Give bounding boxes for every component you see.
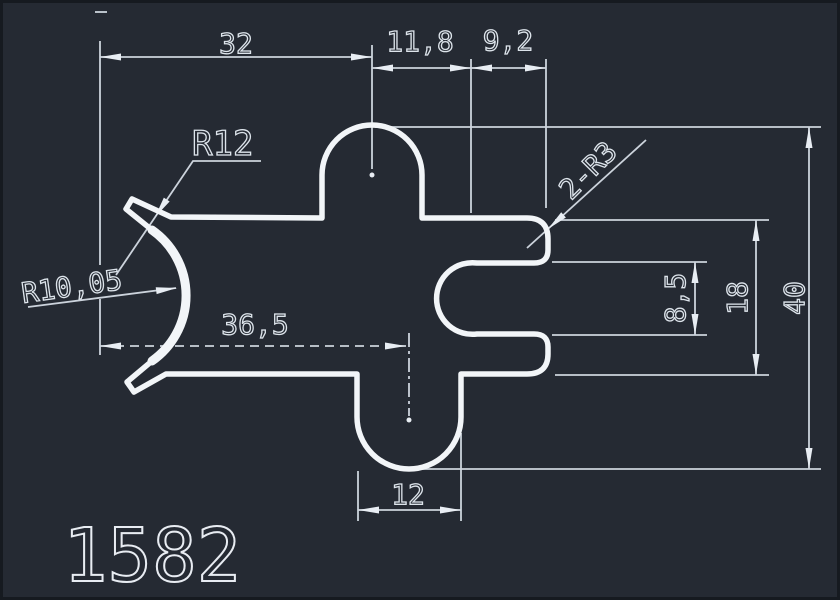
dimension-arrowhead: [525, 65, 546, 72]
dimension-arrowhead: [753, 220, 760, 241]
dimension-arrowhead: [351, 54, 372, 61]
dim-label-height-slot: 8,5: [659, 273, 692, 324]
dim-label-radius-outer: R12: [192, 124, 253, 164]
claw-arc: [152, 230, 186, 361]
dim-label-width-slot: 9,2: [483, 24, 534, 57]
dimension-labels: 32 11,8 9,2 R12 R10,05 2-R3 36,5 8,5 18 …: [19, 24, 811, 511]
dimension-arrowhead: [471, 65, 492, 72]
dimension-arrowhead: [100, 54, 121, 61]
dimension-arrowhead: [385, 343, 406, 350]
dim-label-height-total: 40: [778, 281, 811, 315]
centerline-end-mark: [407, 418, 412, 423]
dimension-arrowhead: [100, 343, 121, 350]
dimension-arrowhead: [806, 127, 813, 148]
dim-label-width-bump: 11,8: [386, 25, 453, 58]
dimension-arrowhead: [358, 507, 379, 514]
dim-label-radius-inner: R10,05: [19, 263, 124, 310]
dim-label-width-bottom-bump: 12: [391, 478, 425, 511]
dim-label-width-mid: 36,5: [221, 308, 288, 341]
dimension-arrowhead: [450, 65, 471, 72]
profile-outline: [126, 125, 548, 469]
dimension-arrowhead: [806, 448, 813, 469]
dimension-arrowhead: [372, 65, 393, 72]
part-number: 1582: [63, 513, 241, 599]
dimension-arrowhead: [692, 262, 699, 283]
dimension-arrowhead: [692, 314, 699, 335]
dimension-arrowhead: [156, 287, 177, 294]
dimension-arrowhead: [753, 354, 760, 375]
dimension-arrowhead: [440, 507, 461, 514]
arc-center-mark: [370, 173, 375, 178]
dim-label-height-inner: 18: [721, 281, 754, 315]
cad-drawing: 32 11,8 9,2 R12 R10,05 2-R3 36,5 8,5 18 …: [3, 3, 840, 600]
dim-label-width-left: 32: [219, 27, 253, 60]
cad-drawing-canvas: 32 11,8 9,2 R12 R10,05 2-R3 36,5 8,5 18 …: [0, 0, 840, 600]
